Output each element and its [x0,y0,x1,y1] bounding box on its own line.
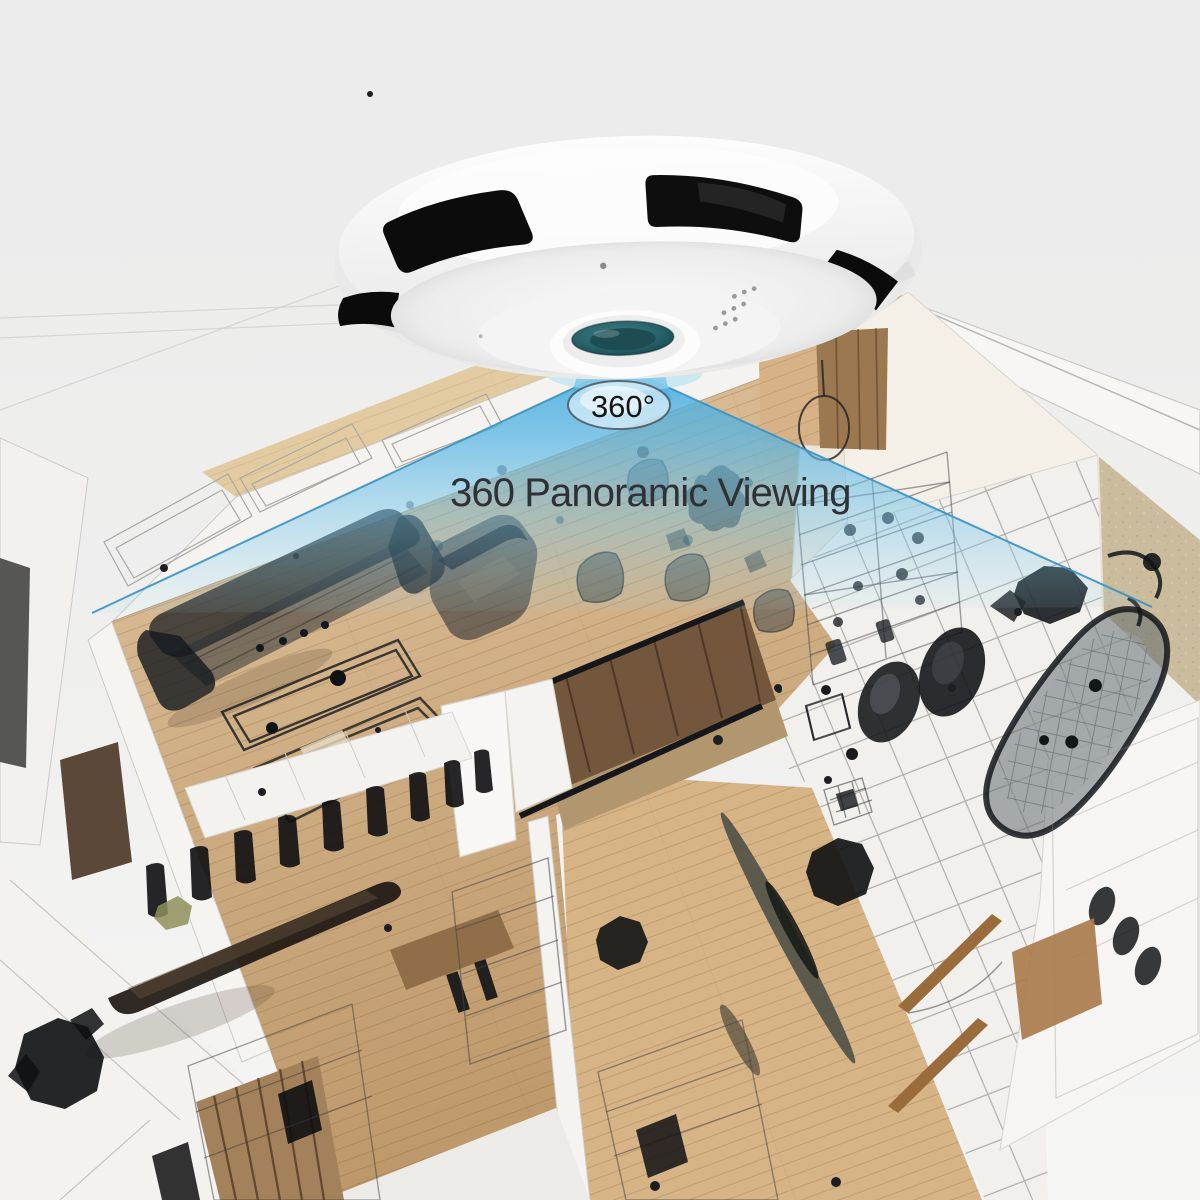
svg-text:360 Panoramic Viewing: 360 Panoramic Viewing [450,471,851,515]
svg-text:360°: 360° [591,389,655,424]
